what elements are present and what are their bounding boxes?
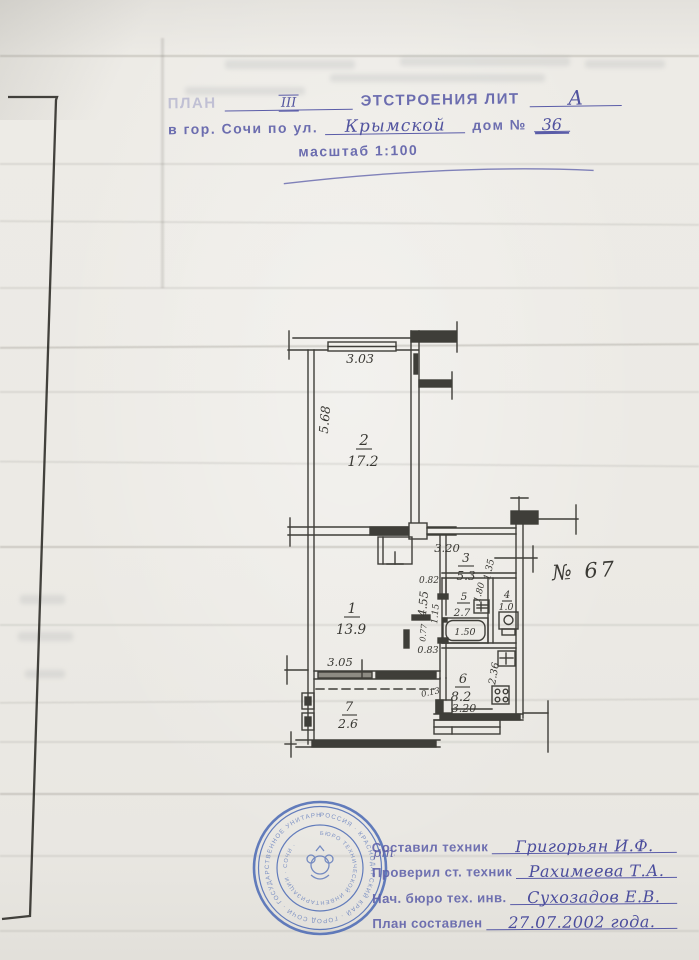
dim-bath-door: 0.82 (419, 576, 439, 586)
signature-row: План составлен 27.07.2002 года. (372, 903, 677, 931)
room-2-num: 2 (358, 431, 369, 449)
signature-line: 27.07.2002 года. (486, 915, 677, 930)
signature-value: 27.07.2002 года. (508, 912, 655, 932)
room-2-area: 17.2 (347, 454, 378, 470)
dim-room2-height: 5.68 (316, 405, 333, 434)
dim-tub-bottom: 0.83 (417, 645, 438, 656)
room-3-num: 3 (462, 551, 470, 565)
seal-emblem (307, 846, 333, 879)
dim-room1-width: 3.05 (327, 655, 353, 669)
signature-label: Нач. бюро тех. инв. (372, 890, 507, 906)
dim-hall-width: 3.20 (434, 541, 460, 555)
room-4-area: 1.0 (498, 602, 513, 613)
scanned-floor-plan-page: { "header": { "plan_label": "ПЛАН", "flo… (0, 0, 699, 960)
signature-label: Проверил ст. техник (372, 864, 512, 880)
dim-kitchen-width: 3.20 (452, 702, 477, 715)
signature-value: Сухозадов Е.В. (527, 887, 660, 907)
seal-inner-text: БЮРО ТЕХНИЧЕСКОЙ ИНВЕНТАРИЗАЦИИ · СОЧИ · (283, 831, 357, 905)
svg-text:БЮРО ТЕХНИЧЕСКОЙ ИНВЕНТАРИЗАЦИ: БЮРО ТЕХНИЧЕСКОЙ ИНВЕНТАРИЗАЦИИ · СОЧИ · (283, 831, 357, 905)
room-1-area: 13.9 (336, 622, 366, 638)
signature-value: Рахимеева Т.А. (529, 861, 665, 881)
room-5-area: 2.7 (453, 607, 471, 619)
room-6-num: 6 (459, 672, 467, 687)
signature-row: Нач. бюро тех. инв. Сухозадов Е.В. (372, 878, 677, 906)
room-4-num: 4 (503, 590, 510, 601)
signature-row: Проверил ст. техник Рахимеева Т.А. (372, 852, 677, 880)
signature-line: Сухозадов Е.В. (511, 889, 678, 904)
room-7-area: 2.6 (337, 716, 358, 731)
room-7-num: 7 (345, 700, 354, 715)
dim-tub-side: 0.77 (418, 623, 429, 642)
dim-bath-left: 1.15 (430, 603, 442, 624)
signature-label: Составил техник (372, 839, 489, 855)
room-5-num: 5 (461, 591, 468, 603)
room-3-area: 5.3 (456, 569, 475, 583)
dim-step: 0.13 (420, 686, 441, 700)
dim-kitchen-depth: 2.36 (487, 661, 502, 686)
signature-value: Григорьян И.Ф. (515, 836, 654, 856)
signature-block: Составил техник Григорьян И.Ф. Проверил … (372, 827, 678, 931)
signature-row: Составил техник Григорьян И.Ф. (372, 827, 677, 855)
signature-line: Рахимеева Т.А. (516, 864, 677, 879)
dim-corridor: 4.55 (415, 590, 431, 618)
signature-label: План составлен (372, 915, 482, 931)
dim-tub: 1.50 (454, 627, 475, 638)
room-1-num: 1 (348, 601, 357, 617)
signature-line: Григорьян И.Ф. (492, 838, 677, 853)
apartment-number-note: № 67 (550, 557, 618, 586)
dim-room2-width: 3.03 (346, 351, 374, 366)
